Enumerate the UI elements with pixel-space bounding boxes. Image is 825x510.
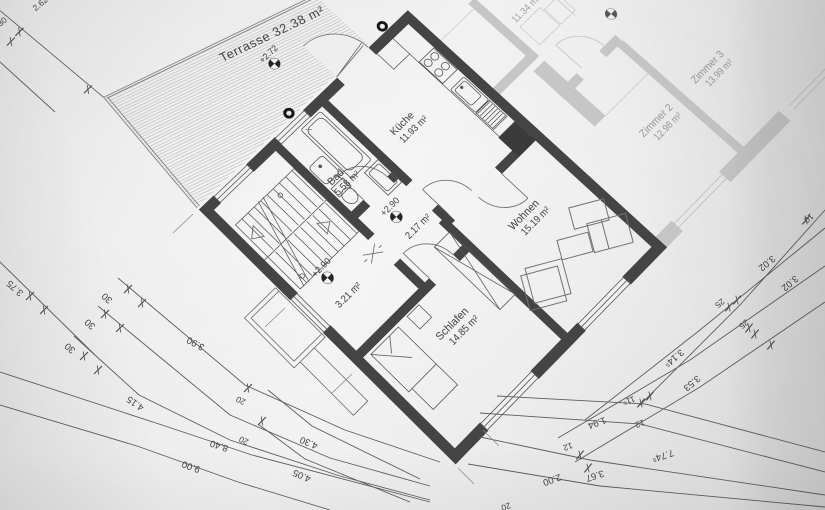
- svg-text:11⁵: 11⁵: [622, 394, 637, 408]
- svg-text:3.67: 3.67: [584, 467, 605, 483]
- svg-text:8.40: 8.40: [209, 437, 230, 453]
- svg-text:2.00: 2.00: [541, 471, 562, 488]
- svg-text:3.02: 3.02: [779, 273, 800, 293]
- svg-text:3.53: 3.53: [681, 373, 702, 393]
- svg-text:20: 20: [234, 394, 247, 407]
- svg-text:25: 25: [713, 296, 727, 310]
- svg-text:20: 20: [500, 501, 513, 510]
- svg-text:20: 20: [237, 434, 250, 447]
- svg-text:30: 30: [63, 340, 78, 355]
- svg-text:4.05: 4.05: [291, 467, 312, 484]
- svg-text:7.74⁵: 7.74⁵: [650, 447, 675, 464]
- svg-text:2.62: 2.62: [31, 0, 50, 13]
- svg-text:12: 12: [562, 441, 575, 454]
- svg-text:3.14⁵: 3.14⁵: [661, 346, 685, 369]
- svg-text:9.00: 9.00: [181, 458, 202, 475]
- svg-text:30: 30: [83, 316, 98, 331]
- svg-text:30: 30: [100, 290, 115, 305]
- svg-text:12: 12: [634, 418, 647, 431]
- svg-text:3.75: 3.75: [5, 278, 26, 299]
- svg-text:4.30: 4.30: [298, 434, 319, 451]
- svg-text:4.15: 4.15: [125, 393, 146, 413]
